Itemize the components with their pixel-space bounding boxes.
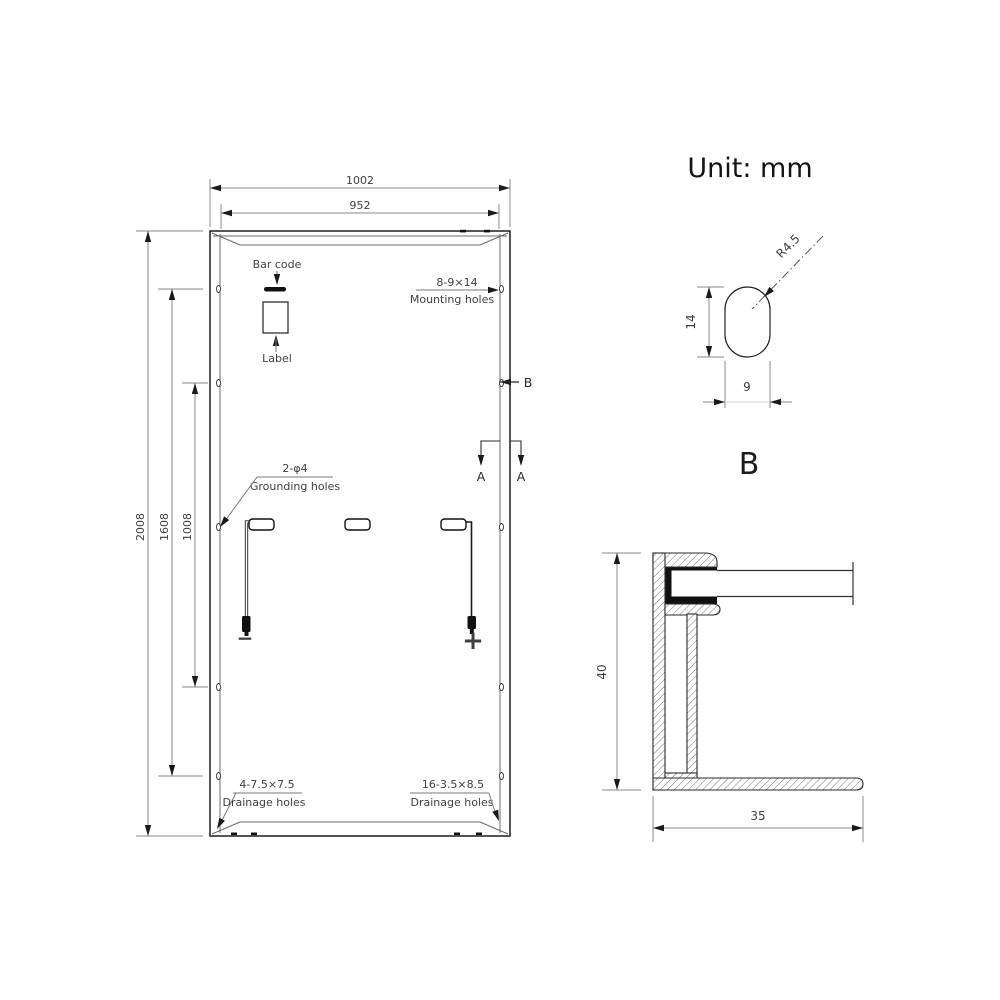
- slot-height-value: 14: [684, 314, 698, 329]
- junction-box-middle: [345, 519, 370, 530]
- detail-b-radius-callout: R4.5: [752, 232, 823, 309]
- profile-outer-wall: [653, 553, 665, 790]
- barcode-callout: Bar code: [253, 258, 302, 292]
- section-a-right-letter: A: [517, 469, 526, 484]
- grounding-holes-callout: 2-φ4 Grounding holes: [217, 462, 340, 529]
- grounding-holes-label: Grounding holes: [250, 480, 340, 493]
- mounting-holes-label: Mounting holes: [410, 293, 495, 306]
- section-b-letter: B: [524, 375, 533, 390]
- inner-width-value: 952: [350, 199, 371, 212]
- drainage-hole-mark: [484, 230, 490, 233]
- nameplate-callout: Label: [262, 302, 292, 365]
- aluminum-profile: [653, 553, 863, 790]
- profile-lower-jaw: [665, 604, 720, 615]
- dimension-frame-width: 35: [653, 796, 863, 842]
- mount-span-inner-value: 1008: [181, 513, 194, 541]
- drainage-hole-mark: [460, 230, 466, 233]
- positive-cable: [466, 522, 472, 616]
- frame-height-value: 40: [595, 664, 609, 679]
- junction-box-left: [249, 519, 274, 530]
- dimension-frame-height: 40: [595, 553, 641, 790]
- glass-gasket: [664, 563, 717, 604]
- dimension-inner-width: 952: [221, 199, 499, 229]
- drainage-left-spec: 4-7.5×7.5: [239, 778, 294, 791]
- technical-drawing-page: Bar code Label 8-9×14 Mounting holes 2-φ…: [0, 0, 1000, 1000]
- frame-hole-marks: [217, 286, 504, 780]
- section-marker-a: A A: [477, 441, 526, 484]
- drainage-hole-mark: [251, 833, 257, 836]
- dimension-mount-span-inner: 1008: [181, 383, 208, 687]
- frame-section-view: 40 35: [595, 553, 863, 842]
- barcode-symbol: [264, 287, 286, 292]
- mounting-holes-callout: 8-9×14 Mounting holes: [410, 276, 499, 306]
- mounting-hole-mark: [217, 286, 221, 293]
- mounting-hole-mark: [217, 773, 221, 780]
- drainage-hole-mark: [476, 833, 482, 836]
- junction-boxes: − +: [237, 519, 484, 656]
- drainage-right-label: Drainage holes: [410, 796, 493, 809]
- detail-b-view: R4.5 14 9 B: [684, 232, 823, 482]
- grounding-hole-mark: [217, 524, 221, 531]
- grounding-holes-spec: 2-φ4: [282, 462, 307, 475]
- panel-outer-frame: [210, 231, 510, 836]
- dimension-slot-width: 9: [703, 361, 792, 408]
- frame-width-value: 35: [750, 809, 765, 823]
- panel-inner-frame-lines: [212, 233, 508, 834]
- drainage-left-label: Drainage holes: [222, 796, 305, 809]
- mounting-hole-mark: [500, 773, 504, 780]
- section-marker-b: B: [500, 375, 532, 390]
- grounding-holes-leader: [222, 477, 257, 525]
- section-a-left-line: [481, 441, 500, 461]
- drainage-hole-marks: [231, 230, 490, 835]
- outer-height-value: 2008: [134, 513, 147, 541]
- drainage-right-callout: 16-3.5×8.5 Drainage holes: [410, 778, 502, 822]
- mounting-hole-mark: [217, 684, 221, 691]
- mounting-hole-mark: [500, 380, 504, 387]
- mounting-hole-mark: [217, 380, 221, 387]
- glass-pane: [717, 562, 853, 605]
- nameplate-rect: [263, 302, 288, 333]
- mounting-holes-spec: 8-9×14: [436, 276, 477, 289]
- panel-rear-view: Bar code Label 8-9×14 Mounting holes 2-φ…: [134, 174, 532, 836]
- outer-width-value: 1002: [346, 174, 374, 187]
- junction-box-right: [441, 519, 466, 530]
- unit-note: Unit: mm: [687, 153, 812, 184]
- barcode-label: Bar code: [253, 258, 302, 271]
- profile-inner-wall: [687, 614, 697, 780]
- slot-radius-value: R4.5: [774, 232, 803, 261]
- negative-polarity-symbol: −: [237, 626, 254, 650]
- positive-polarity-symbol: +: [462, 626, 484, 656]
- detail-b-title: B: [739, 447, 760, 482]
- slot-width-value: 9: [743, 380, 751, 394]
- mounting-hole-mark: [500, 286, 504, 293]
- section-a-left-letter: A: [477, 469, 486, 484]
- profile-bottom-flange: [653, 778, 863, 790]
- solar-panel-dimension-drawing: Bar code Label 8-9×14 Mounting holes 2-φ…: [0, 0, 1000, 1000]
- drainage-hole-mark: [454, 833, 460, 836]
- nameplate-label: Label: [262, 352, 292, 365]
- drainage-hole-mark: [231, 833, 237, 836]
- drainage-right-spec: 16-3.5×8.5: [422, 778, 484, 791]
- dimension-slot-height: 14: [684, 287, 724, 357]
- unit-label: Unit: mm: [687, 153, 812, 184]
- grounding-hole-mark: [500, 524, 504, 531]
- drainage-left-callout: 4-7.5×7.5 Drainage holes: [214, 778, 306, 831]
- mounting-hole-mark: [500, 684, 504, 691]
- mount-span-outer-value: 1608: [158, 513, 171, 541]
